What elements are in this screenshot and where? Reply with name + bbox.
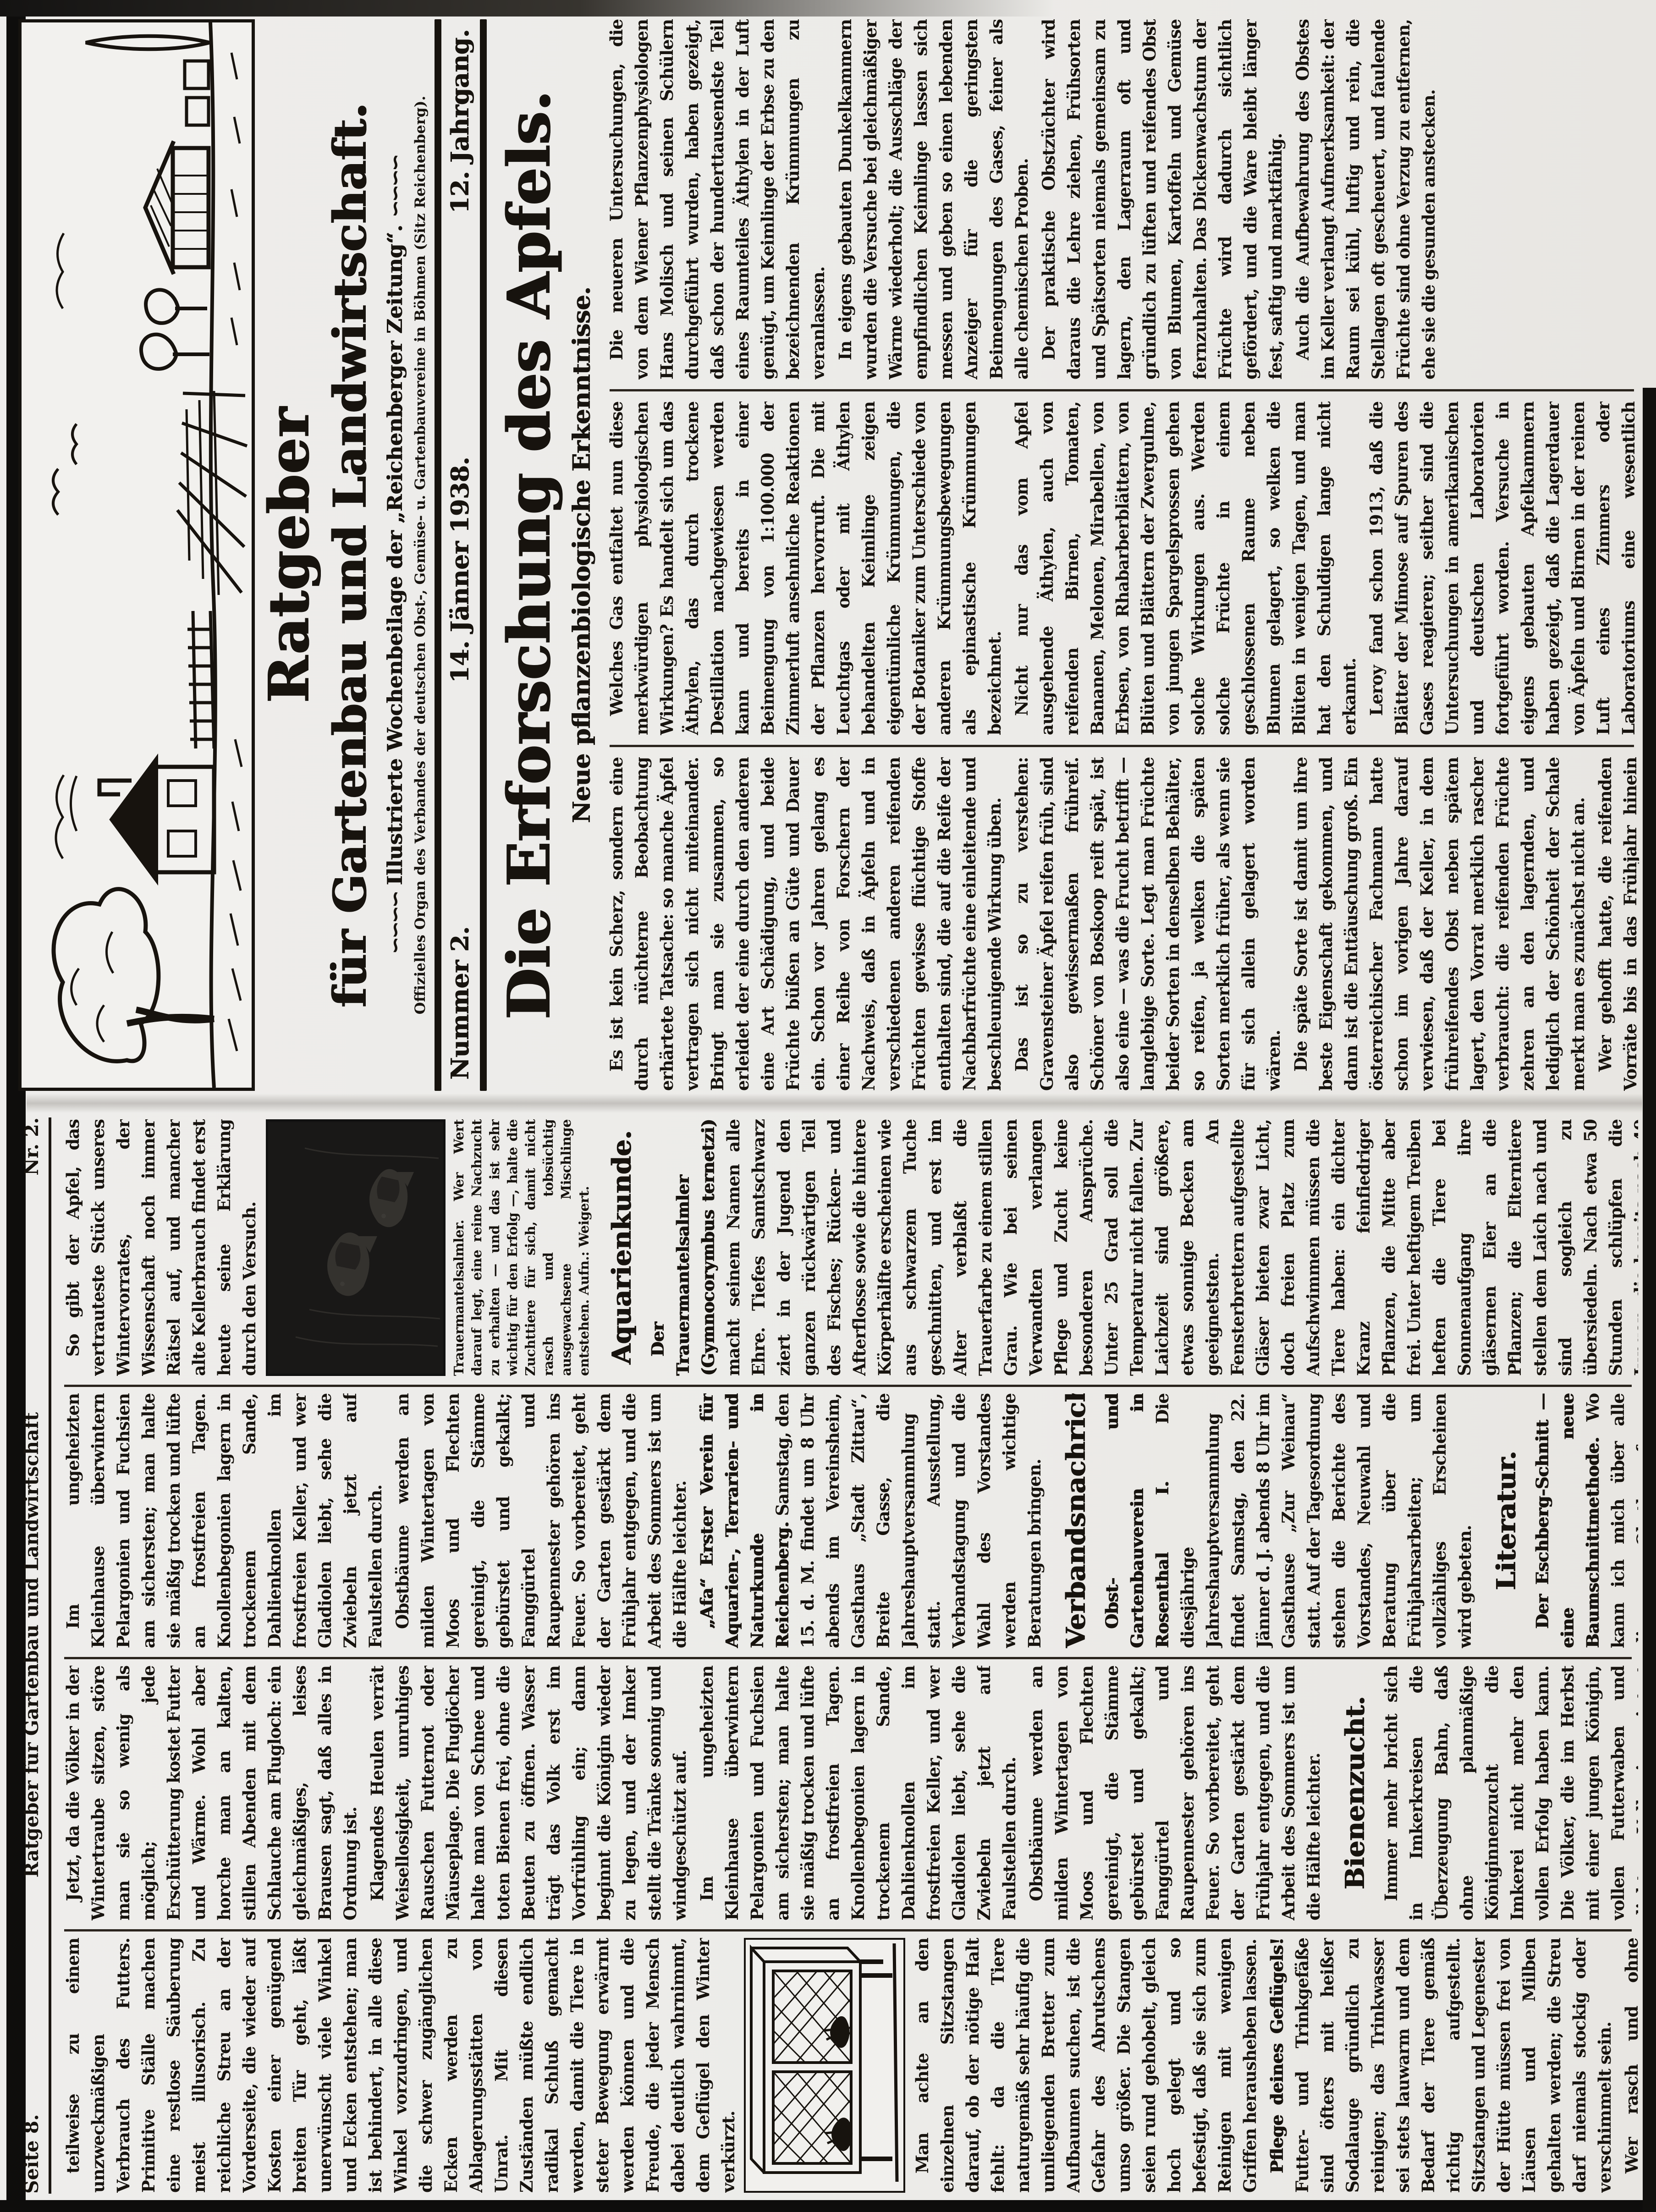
body-paragraph: Welches Gas entfaltet nun diese merkwürd… xyxy=(604,402,1007,735)
body-paragraph: So gibt der Apfel, das vertrauteste Stüc… xyxy=(61,1119,262,1376)
fish-photo-art xyxy=(268,1123,443,1374)
lead-headline: Die Erforschung des Apfels. xyxy=(494,19,567,1091)
body-paragraph: Pflege deines Geflügels! Futter- und Tri… xyxy=(1265,1938,1617,2193)
body-paragraph: teilweise zu einem unzweckmäßigen Verbra… xyxy=(61,1938,741,2193)
hutch-woodcut xyxy=(744,1938,905,2193)
scan-edge-bottom-bar xyxy=(1643,388,1656,2212)
issue-volume: 12. Jahrgang. xyxy=(446,29,474,214)
bold-lead-in: Der Eschberg-Schnitt — eine neue Baumsch… xyxy=(1532,1393,1603,1648)
page8-column-3: Im ungeheizten Kleinhause überwintern Pe… xyxy=(61,1393,1638,1648)
bold-lead-in: „Afa“ Erster Verein für Aquarien-, Terra… xyxy=(697,1393,792,1648)
body-paragraph: Es ist kein Scherz, sondern eine durch n… xyxy=(604,757,1007,1091)
hutch-woodcut-art xyxy=(746,1940,903,2191)
masthead-woodcut-illustration xyxy=(18,19,255,1091)
scan-edge-left-bar xyxy=(0,2200,1656,2212)
masthead-subtitle-text: Illustrierte Wochenbeilage der „Reichenb… xyxy=(383,225,407,886)
section-heading: Literatur. xyxy=(1491,1393,1522,1648)
running-head-page: Seite 8. xyxy=(21,2114,43,2194)
newspaper-sheet: Ratgeber für Gartenbau und Landwirtschaf… xyxy=(0,0,1656,2212)
black-tetra-photo xyxy=(266,1119,446,1376)
page8-column-1: teilweise zu einem unzweckmäßigen Verbra… xyxy=(61,1938,1638,2193)
column-rule xyxy=(64,1929,1632,1931)
body-paragraph: Obst- und Gartenbauverein in Rosenthal I… xyxy=(1100,1393,1478,1648)
issue-line: Nummer 2. 14. Jänner 1938. 12. Jahrgang. xyxy=(446,29,475,1080)
ornament-left: ∽∽∽∽ xyxy=(383,892,407,954)
body-paragraph: Nicht nur das vom Apfel ausgehende Äthyl… xyxy=(1009,402,1362,735)
body-paragraph: Der Eschberg-Schnitt — eine neue Baumsch… xyxy=(1530,1393,1638,1648)
body-paragraph: Die neueren Untersuchungen, die von dem … xyxy=(604,19,831,380)
column-rule xyxy=(64,1385,1632,1387)
masthead-organ-line: Offizielles Organ des Verbandes der deut… xyxy=(411,19,430,1091)
bold-lead-in: Der Trauermantelsalmler (Gymnocorymbus t… xyxy=(648,1119,718,1376)
section-heading: Verbandsnachrichten. xyxy=(1061,1393,1091,1648)
page-gutter-shadow xyxy=(27,1094,1642,1113)
body-paragraph: Das ist so zu verstehen: Gravensteiner Ä… xyxy=(1009,757,1287,1091)
body-paragraph: Klagendes Heulen verrät Weisellosigkeit,… xyxy=(365,1666,693,1920)
photo-caption: Trauermantelsalmler. Wer Wert darauf leg… xyxy=(450,1119,593,1376)
body-paragraph: Im ungeheizten Kleinhause überwintern Pe… xyxy=(61,1393,388,1648)
masthead-subtitle: ∽∽∽∽ Illustrierte Wochenbeilage der „Rei… xyxy=(382,19,409,1091)
bold-lead-in: Obst- und Gartenbauverein in Rosenthal I… xyxy=(1102,1393,1172,1648)
masthead-rule-top xyxy=(435,19,441,1091)
running-head-number: Nr. 2. xyxy=(21,1117,43,1176)
body-paragraph: Obstbäume werden an milden Wintertagen v… xyxy=(1024,1666,1326,1920)
running-head-rule xyxy=(49,1117,51,2194)
body-paragraph: In eigens gebauten Dunkelkammern wurden … xyxy=(833,19,1034,380)
column-rule xyxy=(610,389,1634,391)
bold-lead-in: Pflege deines Geflügels! xyxy=(1267,1938,1287,2173)
body-paragraph: Leroy fand schon 1913, daß die Blätter d… xyxy=(1364,402,1639,735)
body-paragraph: Der praktische Obstzüchter wird daraus d… xyxy=(1036,19,1288,380)
newspaper-scan: Ratgeber für Gartenbau und Landwirtschaf… xyxy=(0,0,1656,2212)
page8-column-4: So gibt der Apfel, das vertrauteste Stüc… xyxy=(61,1119,1638,1376)
body-paragraph: Die späte Sorte ist damit um ihre beste … xyxy=(1288,757,1591,1091)
body-paragraph: Jetzt, da die Völker in der Wintertraube… xyxy=(61,1666,363,1920)
page1-column-3: Die neueren Untersuchungen, die von dem … xyxy=(604,19,1639,380)
body-paragraph: Obstbäume werden an milden Wintertagen v… xyxy=(390,1393,693,1648)
ornament-right: ∽∽∽∽ xyxy=(383,156,407,218)
body-paragraph: Immer mehr bricht sich in Imkerkreisen d… xyxy=(1379,1666,1638,1920)
page1-column-2: Welches Gas entfaltet nun diese merkwürd… xyxy=(604,402,1639,735)
column-rule xyxy=(64,1657,1632,1659)
running-head-title: Ratgeber für Gartenbau und Landwirtschaf… xyxy=(21,1412,43,1877)
body-paragraph: Auch die Aufbewahrung des Obstes im Kell… xyxy=(1290,19,1441,380)
body-paragraph: Im ungeheizten Kleinhause überwintern Pe… xyxy=(694,1666,1022,1920)
body-paragraph: „Afa“ Erster Verein für Aquarien-, Terra… xyxy=(694,1393,1047,1648)
masthead-title: Ratgeber xyxy=(257,19,322,1091)
section-heading: Aquarienkunde. xyxy=(607,1119,637,1376)
section-heading: Bienenzucht. xyxy=(1340,1666,1370,1920)
body-paragraph: Wer gehofft hatte, die reifenden Vorräte… xyxy=(1593,757,1639,1091)
lead-subhead: Neue pflanzenbiologische Erkenntnisse. xyxy=(568,19,597,1091)
body-paragraph: Man achte an den einzelnen Sitzstangen d… xyxy=(910,1938,1263,2193)
column-rule xyxy=(610,745,1634,747)
body-paragraph: Wer rasch und ohne Verluste aufziehen wi… xyxy=(1619,1938,1638,2193)
page1-column-1: Es ist kein Scherz, sondern eine durch n… xyxy=(604,757,1639,1091)
issue-date: 14. Jänner 1938. xyxy=(446,457,474,683)
masthead-title-line2: für Gartenbau und Landwirtschaft. xyxy=(323,19,379,1091)
issue-number: Nummer 2. xyxy=(446,926,474,1080)
masthead-rule-bottom xyxy=(480,19,487,1091)
garden-scene-woodcut xyxy=(22,22,252,1088)
page8-running-head: Seite 8. Ratgeber für Gartenbau und Land… xyxy=(17,1117,46,2194)
body-paragraph: Der Trauermantelsalmler (Gymnocorymbus t… xyxy=(645,1119,1638,1376)
page8-column-2: Jetzt, da die Völker in der Wintertraube… xyxy=(61,1666,1638,1920)
scan-edge-right-shadow xyxy=(0,0,1054,17)
